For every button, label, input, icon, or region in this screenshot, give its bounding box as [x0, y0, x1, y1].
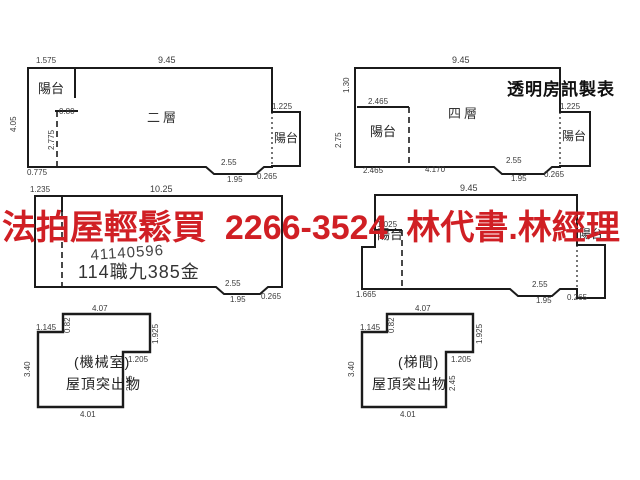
dim-label: 1.95 — [227, 176, 243, 184]
dim-label: 1.925 — [476, 324, 484, 344]
dim-label: 4.01 — [80, 411, 96, 419]
balcony-label: 陽台 — [562, 130, 586, 142]
floor-plan-sheet: 1.575 9.45 陽台 0.80 2.775 4.05 二層 1.225 陽… — [0, 0, 640, 480]
dim-label: 0.80 — [59, 108, 75, 116]
dim-label: 1.95 — [536, 297, 552, 305]
dim-label: 10.25 — [150, 185, 173, 194]
dim-label: 4.05 — [10, 116, 18, 132]
dim-label: 3.40 — [348, 361, 356, 377]
stamp-case: 114職九385金 — [78, 263, 200, 281]
dim-label: 1.95 — [511, 175, 527, 183]
plan-4f-title: 四層 — [448, 107, 480, 120]
dim-label: 1.205 — [128, 356, 148, 364]
dim-label: 4.07 — [92, 305, 108, 313]
dim-label: 1.145 — [36, 324, 56, 332]
dim-label: 1.665 — [356, 291, 376, 299]
dim-label: 2.465 — [368, 98, 388, 106]
dim-label: 1.225 — [272, 103, 292, 111]
dim-label: 2.465 — [363, 167, 383, 175]
balcony-label: 陽台 — [370, 125, 396, 138]
dim-label: 1.925 — [152, 324, 160, 344]
dim-label: 4.01 — [400, 411, 416, 419]
dim-label: 4.07 — [415, 305, 431, 313]
dim-label: 0.82 — [388, 317, 396, 333]
dim-label: 2.45 — [449, 375, 457, 391]
dim-label: 3.40 — [24, 361, 32, 377]
dim-label: 9.45 — [158, 56, 176, 65]
dim-label: 4.170 — [425, 166, 445, 174]
dim-label: 0.775 — [27, 169, 47, 177]
dim-label: 9.45 — [460, 184, 478, 193]
dim-label: 1.205 — [451, 356, 471, 364]
roof-room-label: (機械室) — [74, 355, 130, 369]
dim-label: 0.265 — [257, 173, 277, 181]
dim-label: 0.265 — [567, 294, 587, 302]
dim-label: 9.45 — [452, 56, 470, 65]
dim-label: 2.775 — [48, 130, 56, 150]
dim-label: 2.55 — [221, 159, 237, 167]
dim-label: 0.265 — [261, 293, 281, 301]
dim-label: 2.55 — [532, 281, 548, 289]
watermark: 透明房訊製表 — [507, 81, 615, 98]
dim-label: 1.30 — [343, 77, 351, 93]
ad-banner: 法拍屋輕鬆買 2266-3524 林代書.林經理 — [2, 211, 638, 245]
dim-label: 1.95 — [230, 296, 246, 304]
plan-2f-title: 二層 — [147, 111, 179, 124]
dim-label: 2.75 — [335, 132, 343, 148]
balcony-label: 陽台 — [38, 82, 64, 95]
roof-structure-label: 屋頂突出物 — [372, 377, 447, 391]
dim-label: 2.55 — [506, 157, 522, 165]
dim-label: 1.235 — [30, 186, 50, 194]
dim-label: 1.575 — [36, 57, 56, 65]
roof-structure-label: 屋頂突出物 — [66, 377, 141, 391]
dim-label: 0.265 — [544, 171, 564, 179]
roof-room-label: (梯間) — [398, 355, 439, 369]
dim-label: 0.82 — [64, 317, 72, 333]
dim-label: 1.225 — [560, 103, 580, 111]
dim-label: 1.145 — [360, 324, 380, 332]
dim-label: 2.55 — [225, 280, 241, 288]
balcony-label: 陽台 — [274, 132, 298, 144]
